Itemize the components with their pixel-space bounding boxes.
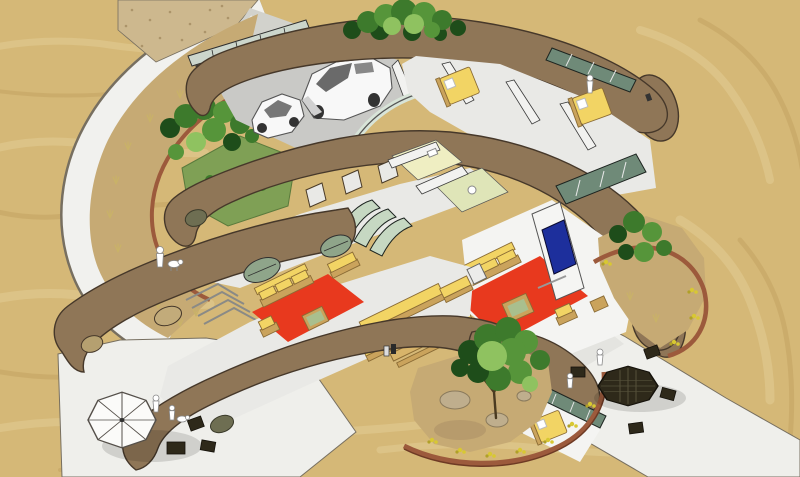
- van-side-window: [354, 62, 374, 74]
- van-wheel: [368, 93, 380, 107]
- dining-table: [598, 366, 658, 406]
- dining-chair: [571, 367, 585, 377]
- car-wheel: [289, 117, 299, 127]
- patio-chair: [200, 440, 216, 452]
- person-patio: [169, 405, 174, 420]
- soil-shade: [434, 420, 486, 440]
- car-wheel: [257, 123, 267, 133]
- bathroom-fixture: [468, 186, 476, 194]
- dining-chair: [628, 422, 643, 434]
- person-patio: [153, 395, 159, 412]
- person-bedroom: [587, 75, 593, 93]
- figure-dining: [567, 373, 572, 388]
- umbrella-hub: [120, 418, 125, 422]
- patio-table-left: [167, 442, 185, 454]
- figure-dining: [597, 349, 603, 365]
- umbrella: [88, 392, 156, 448]
- person-path: [157, 247, 164, 268]
- 3d-viewport[interactable]: [0, 0, 800, 477]
